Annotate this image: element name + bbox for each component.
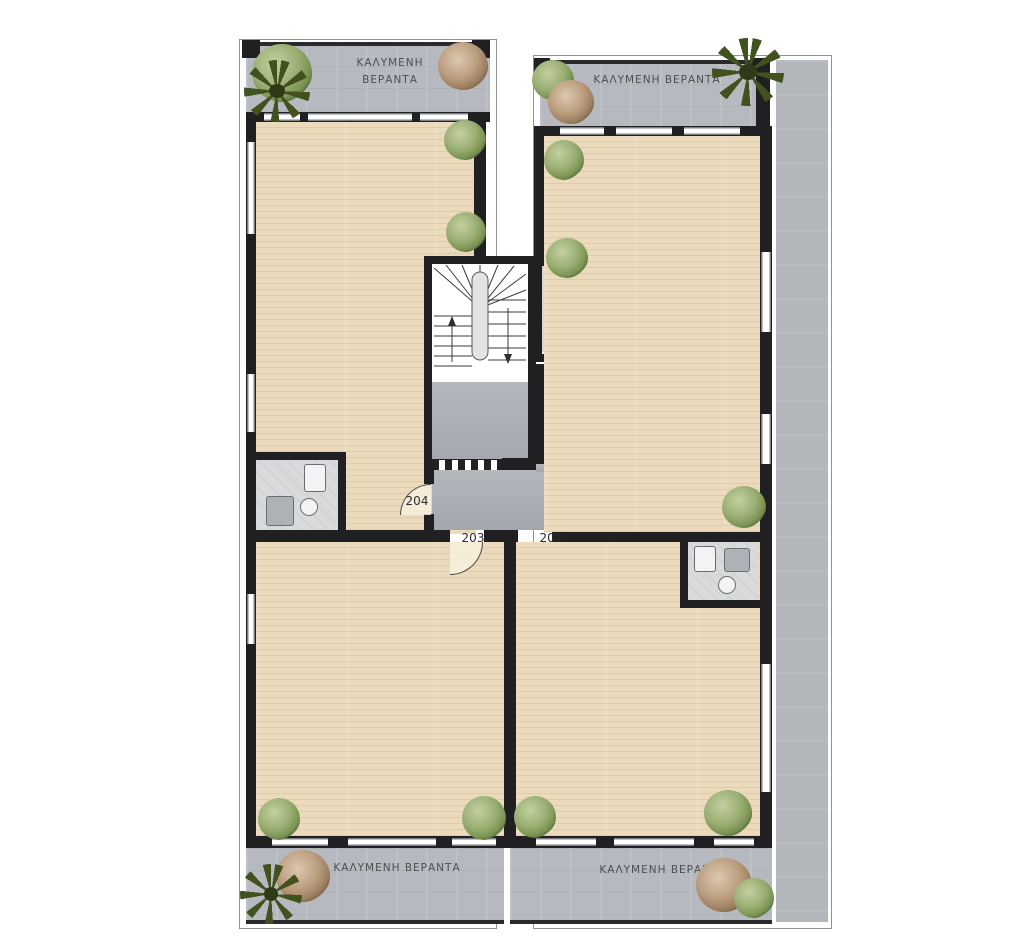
window <box>536 838 596 846</box>
window <box>348 838 436 846</box>
room-203-floor <box>256 542 504 836</box>
window <box>761 664 771 792</box>
veranda-label: ΚΑΛΥΜΕΝΗ ΒΕΡΑΝΤΑ <box>330 55 450 89</box>
toilet-icon <box>694 546 716 572</box>
wall <box>250 452 346 460</box>
plant-bush-icon <box>544 140 584 180</box>
wall <box>338 452 346 538</box>
wall <box>510 920 772 924</box>
side-walkway <box>776 60 828 922</box>
wall <box>424 466 434 484</box>
sink-icon <box>266 496 294 526</box>
floor-plan: ΚΑΛΥΜΕΝΗ ΒΕΡΑΝΤΑ ΚΑΛΥΜΕΝΗ ΒΕΡΑΝΤΑ <box>0 0 1024 946</box>
window <box>761 414 771 464</box>
window <box>684 127 740 135</box>
veranda-label: ΚΑΛΥΜΕΝΗ ΒΕΡΑΝΤΑ <box>592 72 722 89</box>
stair-lobby <box>432 382 528 470</box>
plant-palm-icon <box>712 38 784 106</box>
wall <box>502 458 536 470</box>
window <box>761 252 771 332</box>
window <box>247 142 255 234</box>
plant-palm-icon <box>244 60 310 122</box>
wall <box>436 530 450 542</box>
unit-label-203: 203 <box>456 531 490 545</box>
window <box>560 127 604 135</box>
plant-bush-icon <box>258 798 300 840</box>
sink-icon <box>724 548 750 572</box>
window <box>247 594 255 644</box>
plant-bush-icon <box>548 80 594 124</box>
plant-bush-icon <box>438 42 488 90</box>
stairs-icon <box>432 264 528 382</box>
wall <box>424 256 538 264</box>
window <box>308 113 412 121</box>
plant-palm-icon <box>240 864 302 924</box>
unit-label-204: 204 <box>402 494 432 508</box>
plant-bush-icon <box>722 486 766 528</box>
wall <box>424 256 432 484</box>
plant-bush-icon <box>446 212 486 252</box>
room-201-floor <box>544 136 760 532</box>
veranda-label: ΚΑΛΥΜΕΝΗ ΒΕΡΑΝΤΑ <box>332 860 462 877</box>
plant-bush-icon <box>444 120 486 160</box>
window <box>616 127 672 135</box>
wall <box>534 266 542 356</box>
plant-bush-icon <box>514 796 556 838</box>
plant-bush-icon <box>734 878 774 918</box>
window <box>247 374 255 432</box>
toilet-icon <box>304 464 326 492</box>
plant-bush-icon <box>462 796 506 840</box>
window <box>614 838 694 846</box>
wall <box>534 126 544 266</box>
stairwell <box>432 264 528 382</box>
washbasin-icon <box>718 576 736 594</box>
wall <box>680 538 688 608</box>
wall <box>246 534 256 836</box>
wall <box>504 530 516 848</box>
plant-bush-icon <box>704 790 752 836</box>
washbasin-icon <box>300 498 318 516</box>
window <box>714 838 754 846</box>
wall <box>246 530 436 542</box>
plant-bush-icon <box>546 238 588 278</box>
wall <box>680 600 764 608</box>
